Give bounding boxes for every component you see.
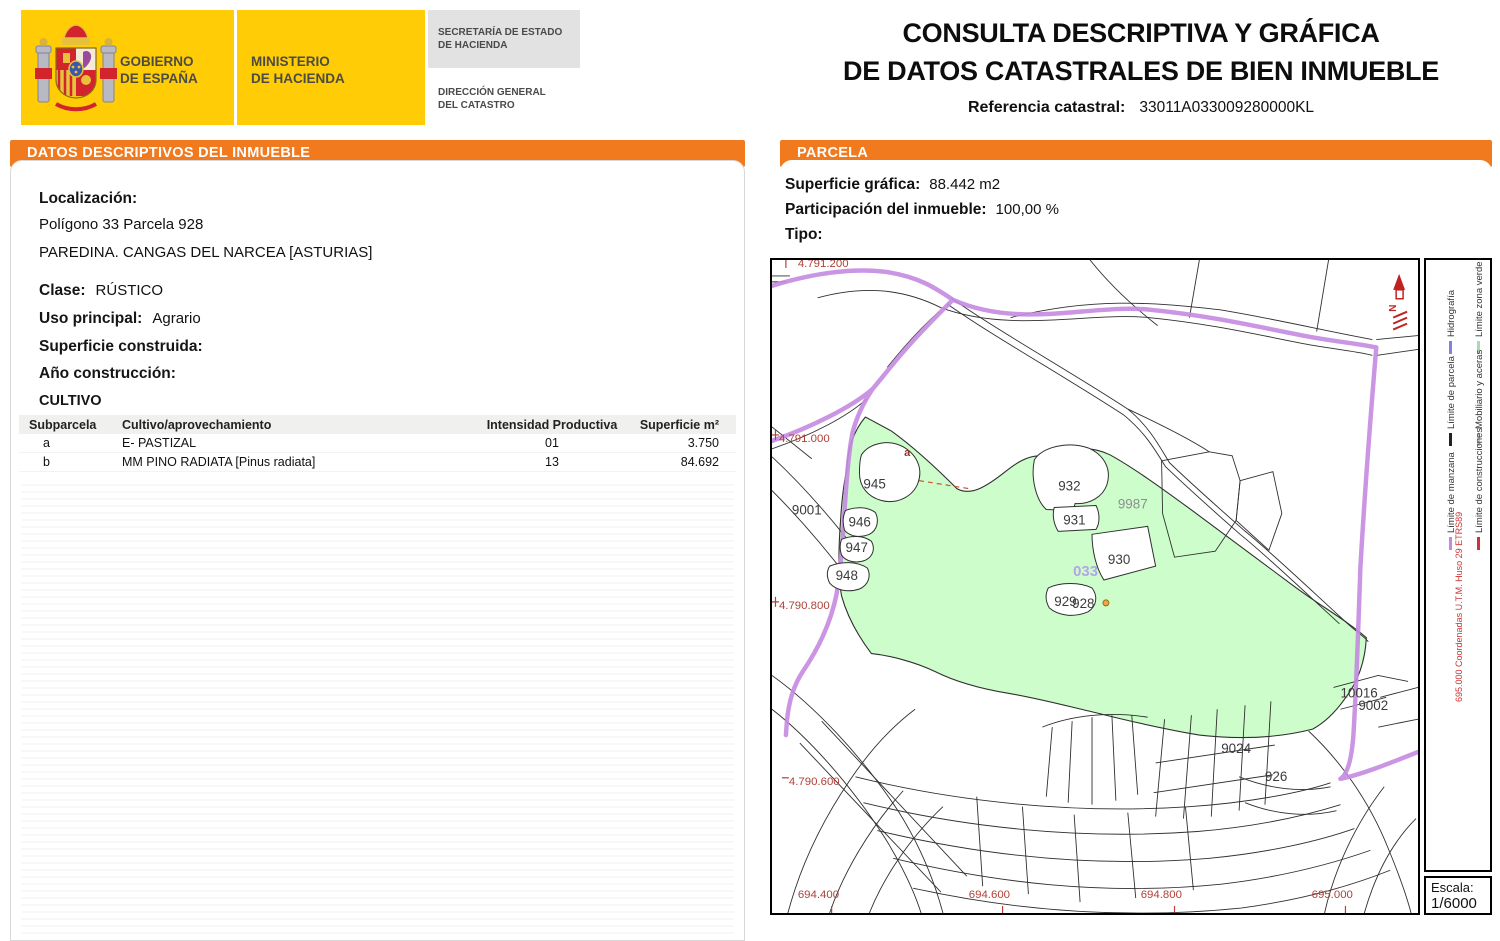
limite-parcela-line-swatch <box>1449 433 1452 446</box>
parcel-label: 926 <box>1265 769 1287 784</box>
limite-manzana-line-swatch <box>1449 537 1452 550</box>
parcel-label: 930 <box>1108 552 1130 567</box>
panel-row-stripes <box>21 479 734 934</box>
col-superficie: Superficie m² <box>633 418 736 432</box>
title-line2: DE DATOS CATASTRALES DE BIEN INMUEBLE <box>790 52 1492 90</box>
parcel-label: 9024 <box>1221 741 1251 756</box>
parcel-label: 9002 <box>1358 698 1388 713</box>
legend-item-limite-parcela: Límite de parcela <box>1446 356 1457 446</box>
gobierno-line1: GOBIERNO <box>120 53 198 70</box>
cultivo-title: CULTIVO <box>39 393 102 409</box>
cultivo-table: Subparcela Cultivo/aprovechamiento Inten… <box>19 415 736 472</box>
participacion-row: Participación del inmueble:100,00 % <box>785 201 1059 219</box>
parcel-label: 928 <box>1072 596 1094 611</box>
catastro-document: GOBIERNO DE ESPAÑA MINISTERIO DE HACIEND… <box>0 0 1500 941</box>
parcel-label: 947 <box>846 540 868 555</box>
secretaria-text: SECRETARÍA DE ESTADO DE HACIENDA <box>438 26 562 52</box>
localizacion-line2: PAREDINA. CANGAS DEL NARCEA [ASTURIAS] <box>39 244 372 261</box>
legend-item-zona-verde: Límite zona verde <box>1474 261 1485 354</box>
secretaria-line2: DE HACIENDA <box>438 39 562 52</box>
coord-label: 694.400 <box>798 889 839 901</box>
cell-superficie: 84.692 <box>633 455 736 469</box>
cadastral-map: N 4.791.200 4.791.000 4.790.800 4.790.60… <box>770 258 1420 915</box>
participacion-label: Participación del inmueble: <box>785 201 987 218</box>
map-legend: Hidrografía Límite zona verde Límite de … <box>1424 258 1492 872</box>
coord-label: 4.790.600 <box>789 776 840 788</box>
parcel-label: 931 <box>1063 512 1085 527</box>
legend-label: Límite de parcela <box>1446 356 1457 429</box>
utm-coordinates-note: 695.000 Coordenadas U.T.M. Huso 29 ETRS8… <box>1454 512 1464 702</box>
document-title: CONSULTA DESCRIPTIVA Y GRÁFICA DE DATOS … <box>790 14 1492 90</box>
clase-value: RÚSTICO <box>96 282 164 299</box>
legend-item-hidrografia: Hidrografía <box>1446 290 1457 354</box>
direccion-line1: DIRECCIÓN GENERAL <box>438 86 546 99</box>
north-letter: N <box>1388 305 1399 312</box>
cell-cultivo: MM PINO RADIATA [Pinus radiata] <box>119 455 471 469</box>
cell-intensidad: 01 <box>471 436 633 450</box>
table-row: b MM PINO RADIATA [Pinus radiata] 13 84.… <box>19 453 736 472</box>
limite-construcciones-line-swatch <box>1477 537 1480 550</box>
cell-cultivo: E- PASTIZAL <box>119 436 471 450</box>
coord-label: 4.791.200 <box>798 260 849 270</box>
legend-item-limite-construcciones: Límite de construcciones <box>1474 428 1485 550</box>
subparcela-a-label: a <box>904 447 911 459</box>
parcel-label: 9001 <box>792 502 822 517</box>
anio-construccion-row: Año construcción: <box>39 365 186 383</box>
datos-descriptivos-panel: Localización: Polígono 33 Parcela 928 PA… <box>10 160 745 941</box>
cadastral-map-image: N 4.791.200 4.791.000 4.790.800 4.790.60… <box>772 260 1418 913</box>
gobierno-text: GOBIERNO DE ESPAÑA <box>120 53 198 87</box>
coord-label: 4.791.000 <box>779 433 830 445</box>
gobierno-logo-block: GOBIERNO DE ESPAÑA <box>21 10 234 125</box>
legend-label: Hidrografía <box>1446 290 1457 337</box>
spain-coat-of-arms <box>35 22 117 118</box>
secretaria-line1: SECRETARÍA DE ESTADO <box>438 26 562 39</box>
hidrografia-line-swatch <box>1449 341 1452 354</box>
parcel-label: 946 <box>849 514 871 529</box>
legend-label: Límite de construcciones <box>1474 428 1485 533</box>
title-line1: CONSULTA DESCRIPTIVA Y GRÁFICA <box>790 14 1492 52</box>
cultivo-table-header: Subparcela Cultivo/aprovechamiento Inten… <box>19 415 736 434</box>
ministerio-line1: MINISTERIO <box>251 53 345 70</box>
col-intensidad: Intensidad Productiva <box>471 418 633 432</box>
participacion-value: 100,00 % <box>996 201 1059 218</box>
north-arrow-icon: N <box>1388 274 1407 330</box>
tipo-row: Tipo: <box>785 226 832 244</box>
superficie-grafica-value: 88.442 m2 <box>929 176 1000 193</box>
coord-label: 4.790.800 <box>779 600 830 612</box>
col-cultivo: Cultivo/aprovechamiento <box>119 418 471 432</box>
coord-label: 694.600 <box>969 889 1010 901</box>
referencia-value: 33011A033009280000KL <box>1139 99 1314 116</box>
superficie-grafica-label: Superficie gráfica: <box>785 176 920 193</box>
parcel-label: 932 <box>1058 479 1080 494</box>
scale-box: Escala: 1/6000 <box>1424 876 1492 915</box>
anio-construccion-label: Año construcción: <box>39 365 176 382</box>
superficie-grafica-row: Superficie gráfica:88.442 m2 <box>785 176 1000 194</box>
poligono-033-label: 033 <box>1073 564 1098 580</box>
parcel-label: 945 <box>863 477 885 492</box>
legend-label: Límite zona verde <box>1474 261 1485 337</box>
uso-principal-label: Uso principal: <box>39 310 142 327</box>
gobierno-line2: DE ESPAÑA <box>120 70 198 87</box>
escala-value: 1/6000 <box>1431 895 1477 912</box>
parcel-label: 948 <box>836 568 858 583</box>
cell-intensidad: 13 <box>471 455 633 469</box>
uso-principal-value: Agrario <box>152 310 200 327</box>
direccion-line2: DEL CATASTRO <box>438 99 546 112</box>
ministerio-text: MINISTERIO DE HACIENDA <box>251 53 345 87</box>
localizacion-line1: Polígono 33 Parcela 928 <box>39 216 203 233</box>
ministerio-logo-block: MINISTERIO DE HACIENDA <box>237 10 425 125</box>
cell-superficie: 3.750 <box>633 436 736 450</box>
ministerio-line2: DE HACIENDA <box>251 70 345 87</box>
localizacion-label: Localización: <box>39 190 137 208</box>
uso-principal-row: Uso principal:Agrario <box>39 310 201 328</box>
superficie-construida-row: Superficie construida: <box>39 338 213 356</box>
coord-label: 694.800 <box>1141 889 1182 901</box>
point-marker <box>1103 600 1109 606</box>
col-subparcela: Subparcela <box>19 418 119 432</box>
escala-label: Escala: <box>1431 880 1474 895</box>
clase-row: Clase:RÚSTICO <box>39 282 163 300</box>
superficie-construida-label: Superficie construida: <box>39 338 203 355</box>
cell-subparcela: b <box>19 455 119 469</box>
table-row: a E- PASTIZAL 01 3.750 <box>19 434 736 453</box>
direccion-general-text: DIRECCIÓN GENERAL DEL CATASTRO <box>438 86 546 112</box>
secretaria-box: SECRETARÍA DE ESTADO DE HACIENDA <box>428 10 580 68</box>
cell-subparcela: a <box>19 436 119 450</box>
referencia-label: Referencia catastral: <box>968 99 1125 116</box>
coord-label: 695.000 <box>1312 889 1353 901</box>
tipo-label: Tipo: <box>785 226 823 243</box>
legend-label: Mobiliario y aceras <box>1474 350 1485 429</box>
parcel-label: 9987 <box>1118 496 1148 511</box>
clase-label: Clase: <box>39 282 86 299</box>
referencia-catastral: Referencia catastral:33011A033009280000K… <box>790 99 1492 117</box>
